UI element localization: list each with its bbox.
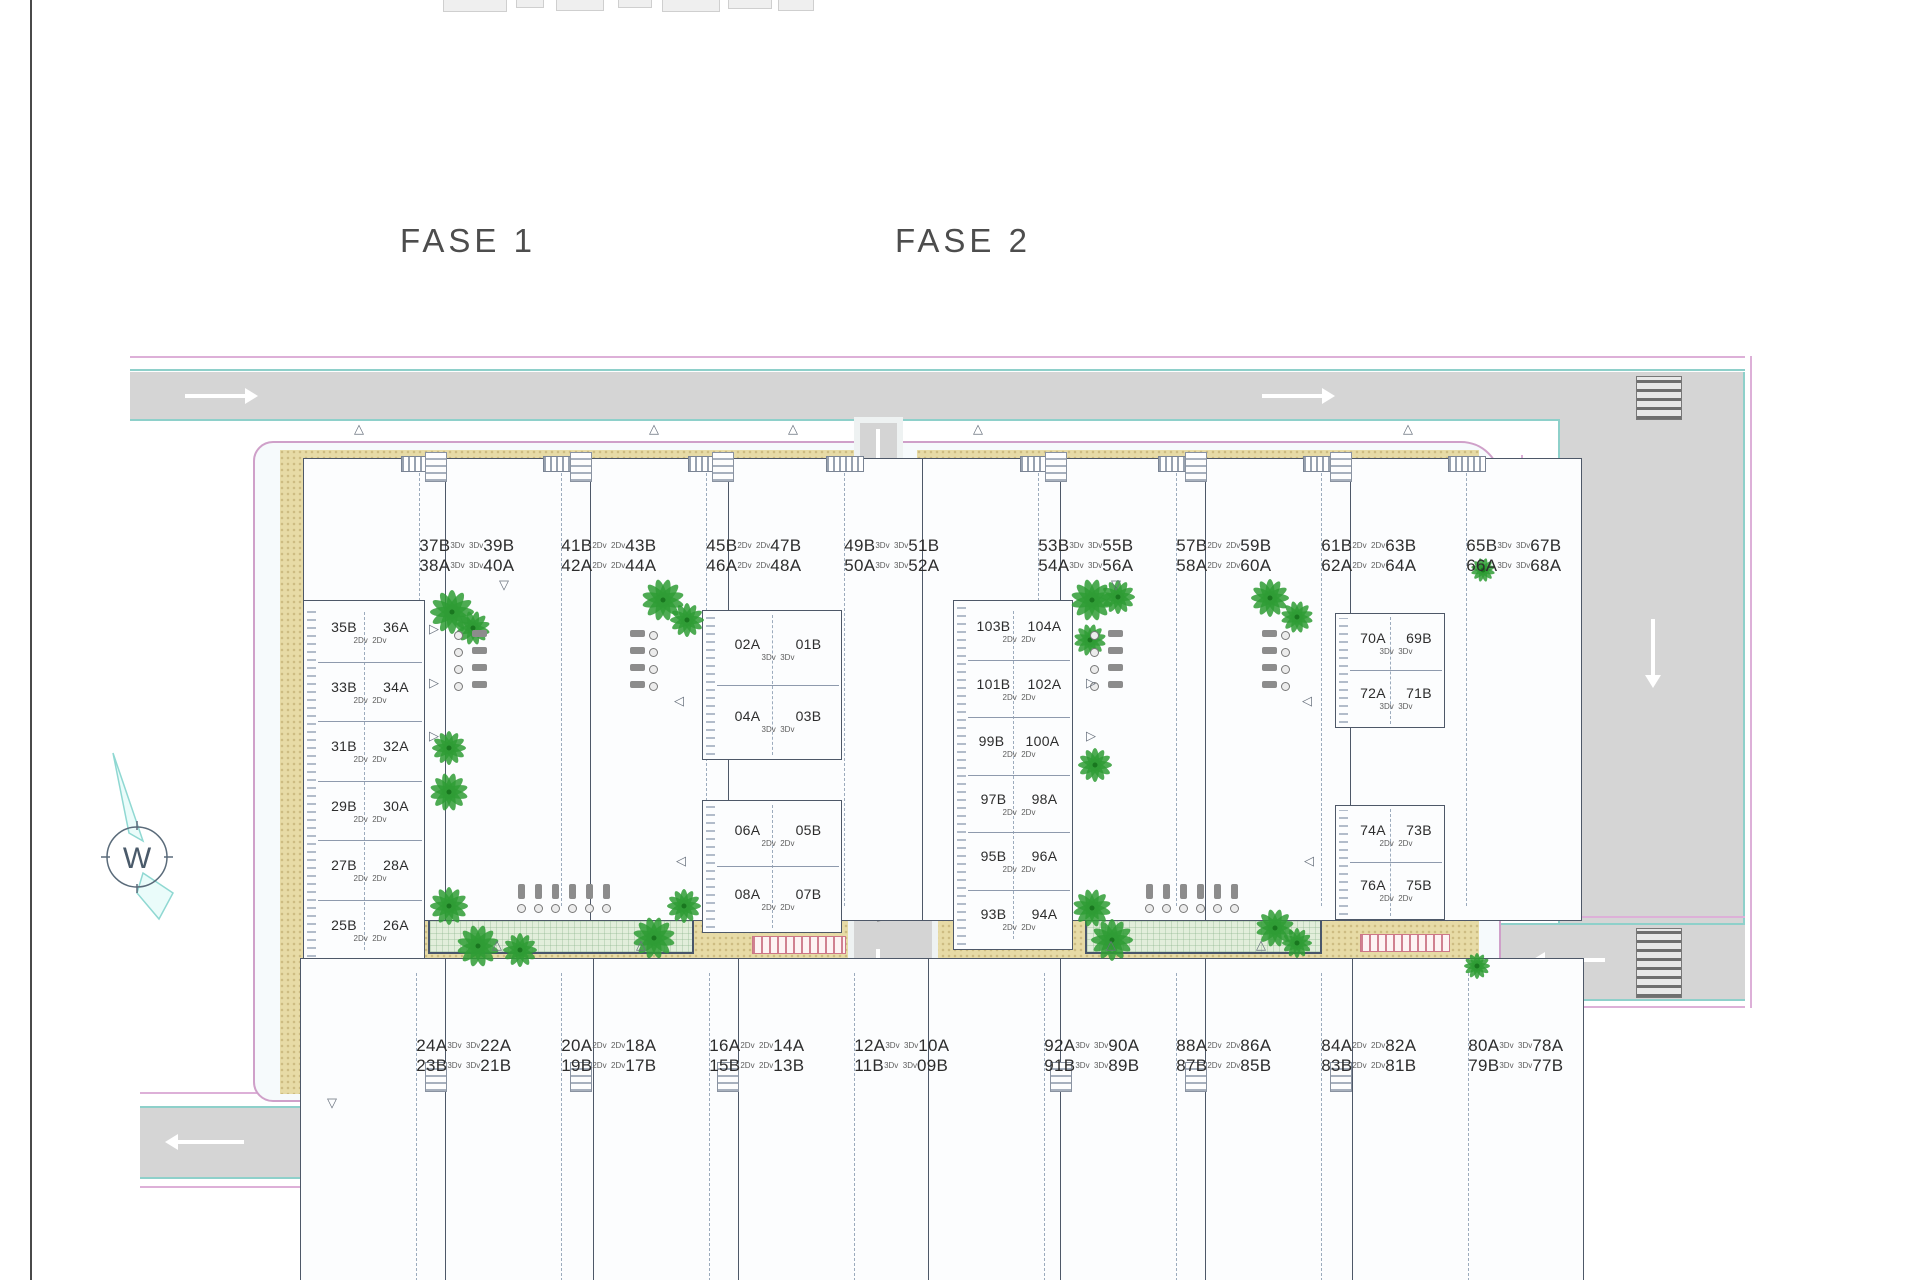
unit-label: 53B: [1038, 536, 1069, 556]
bedroom-type-label: 2Dv 2Dv: [1352, 1061, 1385, 1070]
table-icon: [1145, 904, 1154, 913]
sun-lounger-icon: [630, 630, 645, 637]
unit-label: 103B: [977, 618, 1011, 634]
bedroom-type-label: 2Dv 2Dv: [354, 934, 387, 943]
unit-label: 36A: [383, 619, 409, 635]
cropped-drawing-fragment: [556, 0, 604, 11]
table-icon: [649, 631, 658, 640]
unit-label: 73B: [1406, 822, 1432, 838]
bedroom-type-label: 3Dv 3Dv: [875, 541, 908, 550]
opening-triangle-icon: ▷: [1086, 676, 1096, 689]
opening-triangle-icon: ▷: [429, 676, 439, 689]
unit-label: 61B: [1321, 536, 1352, 556]
sun-lounger-icon: [630, 664, 645, 671]
unit-label: 34A: [383, 679, 409, 695]
unit-label: 21B: [480, 1056, 511, 1076]
bedroom-type-label: 2Dv 2Dv: [1352, 541, 1385, 550]
stairs-icon: [570, 452, 592, 482]
opening-triangle-icon: ▷: [429, 729, 439, 742]
unit-label: 84A: [1321, 1036, 1352, 1056]
bedroom-type-label: 2Dv 2Dv: [1003, 635, 1036, 644]
unit-label: 98A: [1032, 791, 1058, 807]
opening-triangle-icon: △: [1106, 938, 1116, 951]
palm-tree-icon: [1464, 953, 1490, 979]
sun-lounger-icon: [1108, 630, 1123, 637]
unit-label: 72A: [1360, 685, 1386, 701]
phase-1-title: FASE 1: [363, 222, 573, 260]
bedroom-type-label: 2Dv 2Dv: [737, 561, 770, 570]
cropped-drawing-fragment: [516, 0, 544, 8]
table-icon: [1281, 665, 1290, 674]
unit-label: 41B: [561, 536, 592, 556]
bedroom-type-label: 2Dv 2Dv: [592, 561, 625, 570]
bedroom-type-label: 2Dv 2Dv: [592, 1041, 625, 1050]
table-icon: [585, 904, 594, 913]
sun-lounger-icon: [1108, 647, 1123, 654]
unit-label: 26A: [383, 917, 409, 933]
bedroom-type-label: 2Dv 2Dv: [1207, 1061, 1240, 1070]
phase-2-title: FASE 2: [858, 222, 1068, 260]
unit-label: 97B: [981, 791, 1007, 807]
unit-label: 88A: [1176, 1036, 1207, 1056]
unit-label: 69B: [1406, 630, 1432, 646]
sun-lounger-icon: [1262, 647, 1277, 654]
compass: W: [85, 735, 205, 935]
table-icon: [1213, 904, 1222, 913]
unit-label: 05B: [796, 822, 822, 838]
sun-lounger-icon: [472, 647, 487, 654]
bedroom-type-label: 3Dv 3Dv: [884, 1061, 917, 1070]
unit-label: 50A: [844, 556, 875, 576]
sun-lounger-icon: [1163, 884, 1170, 899]
unit-label: 43B: [625, 536, 656, 556]
table-icon: [1162, 904, 1171, 913]
stairs-icon: [425, 452, 447, 482]
unit-label: 24A: [416, 1036, 447, 1056]
opening-triangle-icon: △: [636, 938, 646, 951]
bedroom-type-label: 2Dv 2Dv: [1352, 561, 1385, 570]
bedroom-type-label: 2Dv 2Dv: [1003, 693, 1036, 702]
unit-label: 66A: [1466, 556, 1497, 576]
opening-triangle-icon: ◁: [1302, 694, 1312, 707]
opening-triangle-icon: ▽: [1111, 578, 1121, 591]
unit-label: 32A: [383, 738, 409, 754]
unit-label: 45B: [706, 536, 737, 556]
unit-label: 54A: [1038, 556, 1069, 576]
unit-label: 15B: [709, 1056, 740, 1076]
curb-line: [130, 369, 1745, 371]
unit-label: 57B: [1176, 536, 1207, 556]
unit-block-f2b4: 80A3Dv 3Dv78A79B3Dv 3Dv77B: [1352, 958, 1584, 1280]
sun-lounger-icon: [552, 884, 559, 899]
palm-tree-icon: [456, 611, 490, 645]
unit-label: 101B: [977, 676, 1011, 692]
crosswalk-icon: [1636, 928, 1682, 998]
unit-block-f2m2: 74A73B2Dv 2Dv76A75B2Dv 2Dv: [1335, 805, 1445, 920]
table-icon: [649, 648, 658, 657]
unit-label: 04A: [735, 708, 761, 724]
unit-label: 37B: [419, 536, 450, 556]
cropped-drawing-fragment: [778, 0, 814, 11]
opening-triangle-icon: △: [649, 422, 659, 435]
bedroom-type-label: 3Dv 3Dv: [447, 1041, 480, 1050]
table-icon: [1281, 648, 1290, 657]
sun-lounger-icon: [1108, 681, 1123, 688]
opening-triangle-icon: ◁: [1304, 854, 1314, 867]
bedroom-type-label: 3Dv 3Dv: [447, 1061, 480, 1070]
sidewalk-line: [130, 356, 1745, 358]
opening-triangle-icon: ▷: [429, 622, 439, 635]
crosswalk-icon: [1636, 376, 1682, 420]
bedroom-type-label: 2Dv 2Dv: [1003, 750, 1036, 759]
unit-label: 68A: [1530, 556, 1561, 576]
unit-label: 20A: [561, 1036, 592, 1056]
bedroom-type-label: 3Dv 3Dv: [1499, 1061, 1532, 1070]
opening-triangle-icon: ◁: [676, 854, 686, 867]
unit-label: 83B: [1321, 1056, 1352, 1076]
palm-tree-icon: [430, 773, 468, 811]
palm-tree-icon: [503, 933, 537, 967]
sun-lounger-icon: [630, 681, 645, 688]
bedroom-type-label: 2Dv 2Dv: [1380, 839, 1413, 848]
unit-label: 02A: [735, 636, 761, 652]
sun-lounger-icon: [472, 681, 487, 688]
unit-label: 49B: [844, 536, 875, 556]
unit-label: 28A: [383, 857, 409, 873]
unit-label: 74A: [1360, 822, 1386, 838]
sun-lounger-icon: [535, 884, 542, 899]
bedroom-type-label: 3Dv 3Dv: [762, 725, 795, 734]
bedroom-type-label: 3Dv 3Dv: [762, 653, 795, 662]
unit-label: 91B: [1044, 1056, 1075, 1076]
opening-triangle-icon: △: [1403, 422, 1413, 435]
table-icon: [454, 682, 463, 691]
table-icon: [1090, 665, 1099, 674]
traffic-arrow-down: [1651, 619, 1655, 675]
palm-tree-icon: [1282, 928, 1312, 958]
table-icon: [1179, 904, 1188, 913]
bedroom-type-label: 2Dv 2Dv: [354, 815, 387, 824]
crosswalk-comb-icon: [752, 936, 846, 954]
unit-label: 70A: [1360, 630, 1386, 646]
unit-label: 14A: [773, 1036, 804, 1056]
unit-label: 30A: [383, 798, 409, 814]
sun-lounger-icon: [630, 647, 645, 654]
unit-label: 16A: [709, 1036, 740, 1056]
palm-tree-icon: [430, 887, 468, 925]
bedroom-type-label: 2Dv 2Dv: [740, 1061, 773, 1070]
bedroom-type-label: 3Dv 3Dv: [1497, 561, 1530, 570]
unit-label: 78A: [1532, 1036, 1563, 1056]
unit-label: 80A: [1468, 1036, 1499, 1056]
crosswalk-comb-icon: [1360, 934, 1450, 952]
bedroom-type-label: 2Dv 2Dv: [1352, 1041, 1385, 1050]
bedroom-type-label: 2Dv 2Dv: [592, 1061, 625, 1070]
palm-tree-icon: [667, 889, 701, 923]
bedroom-type-label: 3Dv 3Dv: [1497, 541, 1530, 550]
unit-label: 01B: [796, 636, 822, 652]
unit-label: 64A: [1385, 556, 1416, 576]
sun-lounger-icon: [1231, 884, 1238, 899]
unit-label: 39B: [483, 536, 514, 556]
table-icon: [1281, 631, 1290, 640]
table-icon: [534, 904, 543, 913]
unit-label: 29B: [331, 798, 357, 814]
bedroom-type-label: 3Dv 3Dv: [875, 561, 908, 570]
table-icon: [1230, 904, 1239, 913]
unit-label: 71B: [1406, 685, 1432, 701]
sun-lounger-icon: [1108, 664, 1123, 671]
sun-lounger-icon: [1262, 630, 1277, 637]
table-icon: [454, 648, 463, 657]
bedroom-type-label: 2Dv 2Dv: [1003, 865, 1036, 874]
sun-lounger-icon: [586, 884, 593, 899]
unit-label: 09B: [917, 1056, 948, 1076]
unit-label: 17B: [625, 1056, 656, 1076]
unit-label: 90A: [1108, 1036, 1139, 1056]
unit-label: 23B: [416, 1056, 447, 1076]
cropped-drawing-fragment: [662, 0, 720, 12]
traffic-arrow-right: [1262, 394, 1322, 398]
unit-label: 81B: [1385, 1056, 1416, 1076]
stairs-icon: [712, 452, 734, 482]
table-icon: [1090, 631, 1099, 640]
table-icon: [568, 904, 577, 913]
sun-lounger-icon: [518, 884, 525, 899]
bedroom-type-label: 3Dv 3Dv: [1069, 561, 1102, 570]
unit-label: 102A: [1028, 676, 1062, 692]
unit-label: 08A: [735, 886, 761, 902]
bedroom-type-label: 2Dv 2Dv: [1380, 894, 1413, 903]
opening-triangle-icon: ▽: [327, 1096, 337, 1109]
unit-label: 65B: [1466, 536, 1497, 556]
unit-label: 96A: [1032, 848, 1058, 864]
bedroom-type-label: 2Dv 2Dv: [1003, 808, 1036, 817]
bedroom-type-label: 2Dv 2Dv: [354, 755, 387, 764]
bedroom-type-label: 3Dv 3Dv: [885, 1041, 918, 1050]
unit-label: 25B: [331, 917, 357, 933]
unit-label: 18A: [625, 1036, 656, 1056]
unit-label: 77B: [1532, 1056, 1563, 1076]
unit-label: 79B: [1468, 1056, 1499, 1076]
bedroom-type-label: 2Dv 2Dv: [1207, 541, 1240, 550]
unit-block-f2m1: 70A69B3Dv 3Dv72A71B3Dv 3Dv: [1335, 613, 1445, 728]
unit-label: 92A: [1044, 1036, 1075, 1056]
unit-label: 47B: [770, 536, 801, 556]
table-icon: [649, 665, 658, 674]
bedroom-type-label: 2Dv 2Dv: [762, 903, 795, 912]
unit-label: 82A: [1385, 1036, 1416, 1056]
table-icon: [1281, 682, 1290, 691]
sun-lounger-icon: [472, 664, 487, 671]
unit-label: 27B: [331, 857, 357, 873]
unit-label: 99B: [979, 733, 1005, 749]
sun-lounger-icon: [1262, 681, 1277, 688]
bedroom-type-label: 2Dv 2Dv: [592, 541, 625, 550]
unit-label: 06A: [735, 822, 761, 838]
unit-label: 33B: [331, 679, 357, 695]
compass-letter: W: [123, 842, 152, 875]
table-icon: [551, 904, 560, 913]
sidewalk-line: [1750, 356, 1752, 1008]
bedroom-type-label: 2Dv 2Dv: [762, 839, 795, 848]
unit-label: 62A: [1321, 556, 1352, 576]
bedroom-type-label: 2Dv 2Dv: [740, 1041, 773, 1050]
sun-lounger-icon: [1214, 884, 1221, 899]
bedroom-type-label: 3Dv 3Dv: [450, 561, 483, 570]
table-icon: [517, 904, 526, 913]
cropped-drawing-fragment: [618, 0, 652, 8]
unit-label: 12A: [854, 1036, 885, 1056]
compass-tail: [137, 873, 173, 919]
bedroom-type-label: 2Dv 2Dv: [1207, 1041, 1240, 1050]
unit-label: 67B: [1530, 536, 1561, 556]
unit-label: 100A: [1026, 733, 1060, 749]
opening-triangle-icon: △: [973, 422, 983, 435]
curb-line: [130, 419, 1745, 421]
site-plan: FASE 1 FASE 2 5 7 17 8 5 7 17: [0, 0, 1920, 1280]
unit-label: 19B: [561, 1056, 592, 1076]
unit-block-f1col: 35B36A2Dv 2Dv33B34A2Dv 2Dv31B32A2Dv 2Dv2…: [303, 600, 425, 962]
table-icon: [1196, 904, 1205, 913]
opening-triangle-icon: △: [492, 938, 502, 951]
opening-triangle-icon: ◁: [674, 694, 684, 707]
bedroom-type-label: 3Dv 3Dv: [1380, 702, 1413, 711]
unit-label: 95B: [981, 848, 1007, 864]
unit-block-f1m1: 02A01B3Dv 3Dv04A03B3Dv 3Dv: [702, 610, 842, 760]
drawing-frame-line: [30, 0, 32, 1280]
palm-tree-icon: [670, 603, 704, 637]
unit-label: 94A: [1032, 906, 1058, 922]
unit-label: 59B: [1240, 536, 1271, 556]
sun-lounger-icon: [1197, 884, 1204, 899]
opening-triangle-icon: △: [354, 422, 364, 435]
stairs-icon: [1185, 452, 1207, 482]
unit-label: 46A: [706, 556, 737, 576]
bedroom-type-label: 3Dv 3Dv: [1069, 541, 1102, 550]
curb-line: [1743, 372, 1745, 1000]
bedroom-type-label: 2Dv 2Dv: [354, 636, 387, 645]
unit-label: 85B: [1240, 1056, 1271, 1076]
unit-label: 51B: [908, 536, 939, 556]
unit-label: 76A: [1360, 877, 1386, 893]
unit-label: 104A: [1028, 618, 1062, 634]
unit-label: 93B: [981, 906, 1007, 922]
sun-lounger-icon: [603, 884, 610, 899]
stairs-icon: [1045, 452, 1067, 482]
bedroom-type-label: 3Dv 3Dv: [1075, 1041, 1108, 1050]
sun-lounger-icon: [569, 884, 576, 899]
unit-label: 63B: [1385, 536, 1416, 556]
unit-label: 35B: [331, 619, 357, 635]
unit-label: 89B: [1108, 1056, 1139, 1076]
opening-triangle-icon: △: [788, 422, 798, 435]
bedroom-type-label: 3Dv 3Dv: [1499, 1041, 1532, 1050]
sun-lounger-icon: [1180, 884, 1187, 899]
unit-label: 11B: [854, 1056, 884, 1076]
bedroom-type-label: 3Dv 3Dv: [1075, 1061, 1108, 1070]
unit-label: 44A: [625, 556, 656, 576]
unit-label: 03B: [796, 708, 822, 724]
opening-triangle-icon: △: [1256, 938, 1266, 951]
palm-tree-icon: [1078, 748, 1112, 782]
table-icon: [1090, 648, 1099, 657]
unit-label: 87B: [1176, 1056, 1207, 1076]
unit-label: 56A: [1102, 556, 1133, 576]
unit-label: 86A: [1240, 1036, 1271, 1056]
opening-triangle-icon: ▷: [1086, 729, 1096, 742]
unit-label: 42A: [561, 556, 592, 576]
table-icon: [454, 631, 463, 640]
table-icon: [454, 665, 463, 674]
unit-label: 10A: [918, 1036, 949, 1056]
unit-block-f2col: 103B104A2Dv 2Dv101B102A2Dv 2Dv99B100A2Dv…: [953, 600, 1073, 950]
unit-label: 75B: [1406, 877, 1432, 893]
traffic-arrow-right: [185, 394, 245, 398]
unit-label: 22A: [480, 1036, 511, 1056]
bedroom-type-label: 3Dv 3Dv: [450, 541, 483, 550]
unit-label: 58A: [1176, 556, 1207, 576]
bedroom-type-label: 2Dv 2Dv: [737, 541, 770, 550]
stairs-icon: [1330, 452, 1352, 482]
unit-label: 48A: [770, 556, 801, 576]
bedroom-type-label: 2Dv 2Dv: [1207, 561, 1240, 570]
unit-label: 13B: [773, 1056, 804, 1076]
unit-label: 07B: [796, 886, 822, 902]
top-road: [130, 372, 1745, 420]
palm-tree-icon: [1281, 601, 1313, 633]
table-icon: [649, 682, 658, 691]
sun-lounger-icon: [1146, 884, 1153, 899]
unit-label: 38A: [419, 556, 450, 576]
bedroom-type-label: 2Dv 2Dv: [1003, 923, 1036, 932]
unit-block-f1m2: 06A05B2Dv 2Dv08A07B2Dv 2Dv: [702, 800, 842, 933]
sun-lounger-icon: [1262, 664, 1277, 671]
cropped-drawing-fragment: [443, 0, 507, 12]
bedroom-type-label: 2Dv 2Dv: [354, 874, 387, 883]
bedroom-type-label: 2Dv 2Dv: [354, 696, 387, 705]
traffic-arrow-left: [178, 1140, 244, 1144]
cropped-drawing-fragment: [728, 0, 772, 9]
table-icon: [602, 904, 611, 913]
unit-label: 60A: [1240, 556, 1271, 576]
bedroom-type-label: 3Dv 3Dv: [1380, 647, 1413, 656]
unit-label: 55B: [1102, 536, 1133, 556]
unit-label: 31B: [331, 738, 357, 754]
unit-label: 52A: [908, 556, 939, 576]
opening-triangle-icon: ▽: [499, 578, 509, 591]
sun-lounger-icon: [472, 630, 487, 637]
unit-label: 40A: [483, 556, 514, 576]
